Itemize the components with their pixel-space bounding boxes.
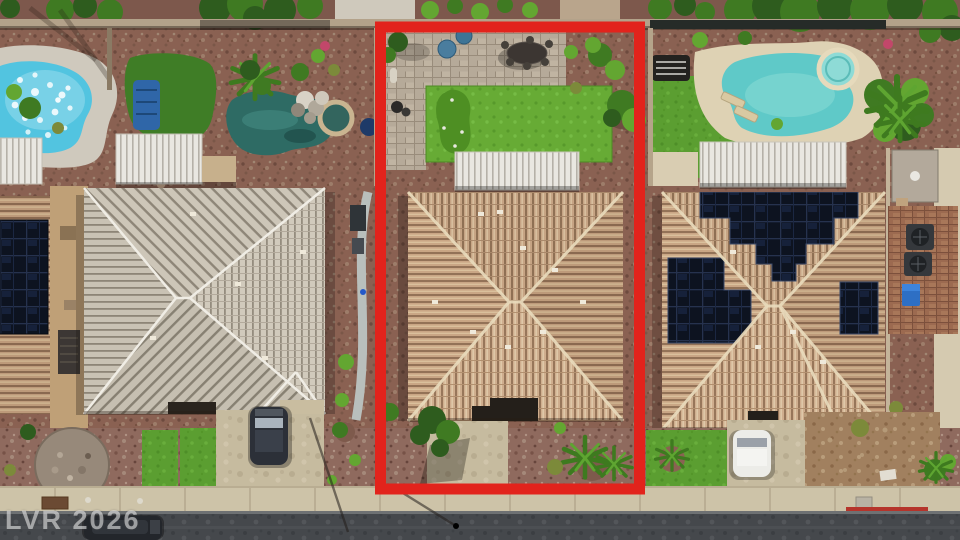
- far-left-neighbor: [0, 186, 88, 432]
- side-wall: [648, 28, 653, 186]
- patio-umbrella: [438, 40, 456, 58]
- aerial-photo: LVR 2026: [0, 0, 960, 540]
- dirt-yard: [804, 412, 940, 488]
- left-house-roof: [76, 188, 325, 415]
- garden-statue: [390, 68, 397, 83]
- pool-equipment: [350, 205, 366, 231]
- spa-middle: [320, 102, 352, 134]
- parked-white-car: [729, 430, 775, 480]
- center-house-roof: [398, 192, 623, 422]
- spa-right: [819, 50, 857, 88]
- patio-cover-left: [116, 134, 202, 184]
- patio-cover-far-left: [0, 138, 42, 184]
- flat-cover: [648, 152, 698, 186]
- aerial-scene: [0, 0, 960, 540]
- pink-bush: [320, 41, 330, 51]
- front-lawn: [180, 428, 216, 487]
- front-lawn: [142, 430, 178, 487]
- pink-bush: [883, 39, 893, 49]
- patio-cover-right: [700, 142, 846, 187]
- solar-array-far-left: [0, 220, 48, 334]
- shed-roof: [202, 156, 236, 182]
- shadow-lamp-head: [453, 523, 459, 529]
- utility-box: [856, 497, 872, 508]
- parked-suv-driveway: [248, 406, 292, 468]
- right-house-roof: [652, 192, 885, 431]
- play-structure: [133, 80, 160, 130]
- bbq-grill: [391, 101, 403, 113]
- patio-cover-center: [455, 152, 579, 190]
- solar-array-east: [840, 282, 878, 334]
- watermark: LVR 2026: [5, 505, 141, 536]
